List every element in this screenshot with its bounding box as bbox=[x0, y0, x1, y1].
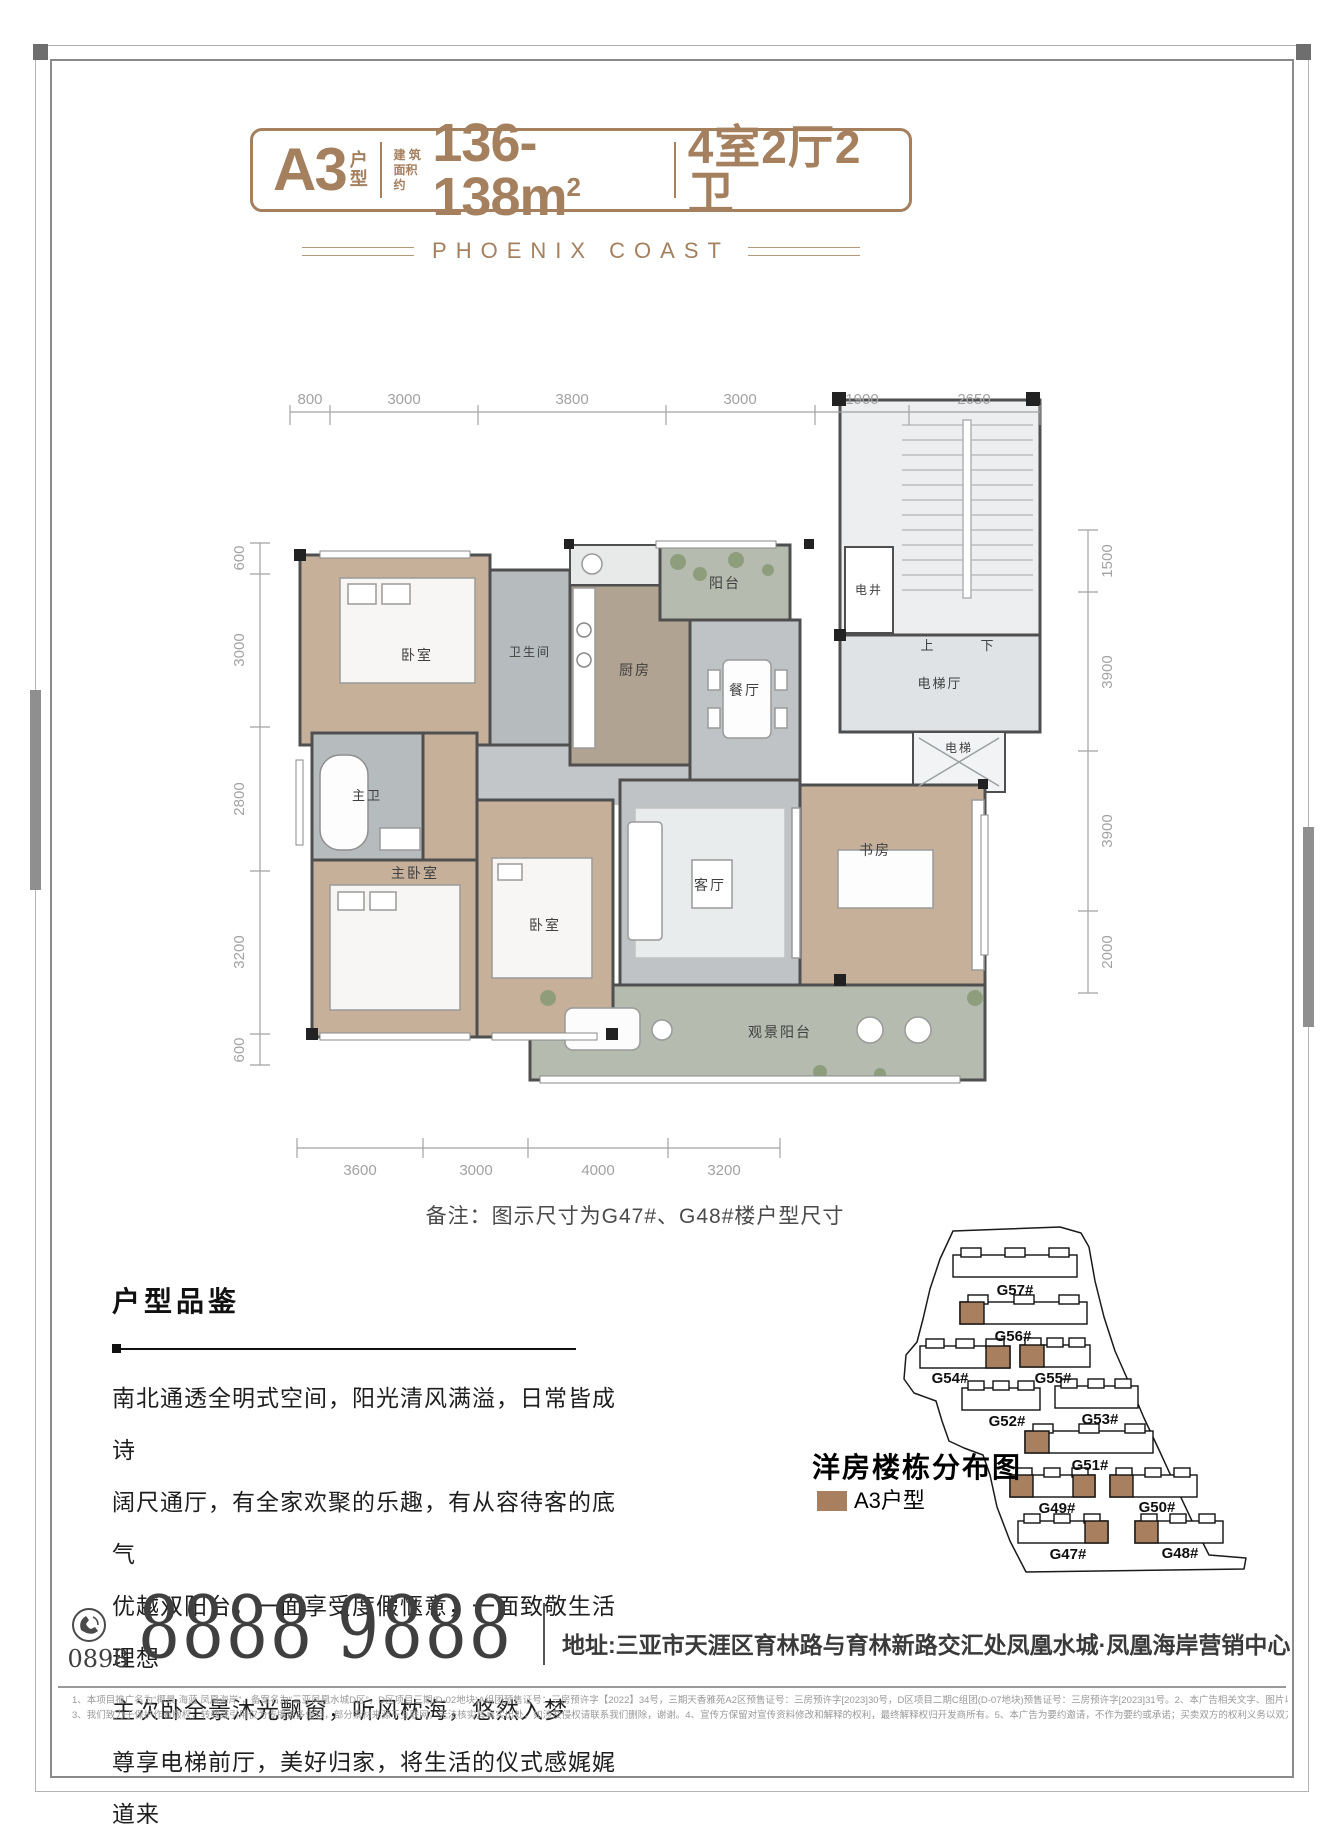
room-label-master-bath: 主卫 bbox=[352, 788, 382, 803]
area-label: 建 筑 面积约 bbox=[394, 148, 427, 193]
description-line: 尊享电梯前厅，美好归家，将生活的仪式感娓娓道来 bbox=[112, 1736, 632, 1824]
room-label-elevator: 电梯 bbox=[945, 741, 973, 755]
dim-left-3: 3200 bbox=[231, 935, 248, 968]
building-label: G56# bbox=[995, 1328, 1032, 1345]
brand-row: PHOENIX COAST bbox=[250, 238, 912, 264]
area-label-line1: 建 筑 bbox=[394, 148, 427, 163]
footer-divider bbox=[543, 1603, 545, 1665]
dim-top-1: 3000 bbox=[387, 391, 420, 408]
poster-page: A3 户 型 建 筑 面积约 136-138m2 4室2厅2卫 PHOENIX … bbox=[0, 0, 1344, 1824]
dim-top-2: 3800 bbox=[555, 391, 588, 408]
building-label: G47# bbox=[1050, 1546, 1087, 1563]
building-label: G55# bbox=[1035, 1370, 1072, 1387]
area-label-line2: 面积约 bbox=[394, 163, 427, 193]
disclaimer: 1、本项目推广名为“椰景·海蓝 凤凰海岸”，备案名为“三亚凤凰水城D区”，D区项… bbox=[72, 1694, 1288, 1723]
dim-left-1: 3000 bbox=[231, 633, 248, 666]
floor-plan: 卧室 卫生间 厨房 阳台 餐厅 电井 上 下 电梯厅 电梯 主卫 主卧室 卧室 … bbox=[180, 330, 1190, 1210]
dim-right-1: 3900 bbox=[1099, 655, 1116, 688]
disclaimer-line-2: 3、我们致力于保护作者版权，转载或引用仅为传播更多信息，部分素材来源于互联网，无… bbox=[72, 1709, 1288, 1724]
phone-icon bbox=[66, 1604, 112, 1650]
frame-bar-right bbox=[1303, 827, 1314, 1027]
building-label: G49# bbox=[1039, 1500, 1076, 1517]
room-label-bedroom-top: 卧室 bbox=[401, 647, 433, 663]
room-label-shaft: 电井 bbox=[855, 583, 883, 597]
brand-line-right bbox=[748, 247, 860, 256]
description-line: 南北通透全明式空间，阳光清风满溢，日常皆成诗 bbox=[112, 1372, 632, 1476]
unit-suffix-bottom: 型 bbox=[350, 170, 368, 189]
frame-corner-tl bbox=[33, 44, 48, 60]
room-label-living: 客厅 bbox=[694, 877, 726, 893]
building-label: G48# bbox=[1162, 1545, 1199, 1562]
footer-rule bbox=[58, 1686, 1286, 1688]
dim-bottom-2: 4000 bbox=[581, 1162, 614, 1179]
area-value: 136-138m2 bbox=[432, 116, 662, 224]
room-label-study: 书房 bbox=[859, 842, 891, 858]
description-line: 阔尺通厅，有全家欢聚的乐趣，有从容待客的底气 bbox=[112, 1476, 632, 1580]
room-label-master-bedroom: 主卧室 bbox=[391, 865, 439, 881]
dim-left-0: 600 bbox=[231, 545, 248, 570]
phone-area-code: 0898 bbox=[56, 1645, 140, 1673]
room-label-bedroom2: 卧室 bbox=[529, 917, 561, 933]
unit-type-header: A3 户 型 建 筑 面积约 136-138m2 4室2厅2卫 bbox=[250, 128, 912, 212]
description-title: 户型品鉴 bbox=[112, 1280, 240, 1320]
dim-bottom-0: 3600 bbox=[343, 1162, 376, 1179]
legend-label: A3户型 bbox=[854, 1488, 925, 1513]
area-value-sup: 2 bbox=[567, 172, 580, 202]
building-label: G57# bbox=[997, 1282, 1034, 1299]
room-label-bath: 卫生间 bbox=[509, 645, 551, 659]
unit-type: A3 bbox=[273, 140, 346, 200]
phone-number: 8888 9888 bbox=[138, 1586, 513, 1672]
dim-top-4: 1900 bbox=[845, 391, 878, 408]
dim-left-2: 2800 bbox=[231, 782, 248, 815]
legend-swatch bbox=[817, 1491, 847, 1511]
unit-suffix-top: 户 bbox=[350, 151, 368, 170]
dim-bottom-1: 3000 bbox=[459, 1162, 492, 1179]
description-rule bbox=[121, 1348, 576, 1350]
header-divider-2 bbox=[674, 142, 676, 198]
site-map-title: 洋房楼栋分布图 bbox=[812, 1451, 1022, 1483]
building-label: G50# bbox=[1139, 1499, 1176, 1516]
unit-type-suffix: 户 型 bbox=[350, 151, 368, 189]
room-label-elevator-hall: 电梯厅 bbox=[917, 676, 962, 691]
room-label-stair-up: 上 bbox=[920, 638, 935, 653]
area-value-number: 136-138m bbox=[432, 113, 566, 227]
frame-bar-left bbox=[30, 690, 41, 890]
dim-right-0: 1500 bbox=[1099, 544, 1116, 577]
room-label-balcony-top: 阳台 bbox=[709, 575, 741, 591]
building-label: G51# bbox=[1072, 1457, 1109, 1474]
site-map: G57# G56# G54# G55# G52# G53# G51# G49# … bbox=[790, 1225, 1270, 1595]
dim-right-3: 2000 bbox=[1099, 935, 1116, 968]
brand-name: PHOENIX COAST bbox=[432, 238, 730, 264]
site-buildings bbox=[920, 1248, 1223, 1543]
dim-top-3: 3000 bbox=[723, 391, 756, 408]
brand-line-left bbox=[302, 247, 414, 256]
frame-corner-tr bbox=[1296, 44, 1311, 60]
description-rule-square bbox=[112, 1344, 121, 1353]
building-label: G52# bbox=[989, 1413, 1026, 1430]
room-label-stair-down: 下 bbox=[980, 638, 995, 653]
room-label-view-balcony: 观景阳台 bbox=[748, 1024, 812, 1040]
header-divider-1 bbox=[380, 142, 382, 198]
address: 地址:三亚市天涯区育林路与育林新路交汇处凤凰水城·凤凰海岸营销中心 bbox=[562, 1626, 1292, 1660]
dim-top-0: 800 bbox=[297, 391, 322, 408]
dim-top-5: 2650 bbox=[957, 391, 990, 408]
rooms-count: 4室2厅2卫 bbox=[688, 124, 889, 216]
room-label-kitchen: 厨房 bbox=[619, 662, 651, 678]
building-label: G54# bbox=[932, 1370, 969, 1387]
dim-bottom-3: 3200 bbox=[707, 1162, 740, 1179]
building-label: G53# bbox=[1082, 1411, 1119, 1428]
dim-left-4: 600 bbox=[231, 1037, 248, 1062]
room-label-dining: 餐厅 bbox=[729, 682, 761, 698]
dim-right-2: 3900 bbox=[1099, 814, 1116, 847]
disclaimer-line-1: 1、本项目推广名为“椰景·海蓝 凤凰海岸”，备案名为“三亚凤凰水城D区”，D区项… bbox=[72, 1694, 1288, 1709]
